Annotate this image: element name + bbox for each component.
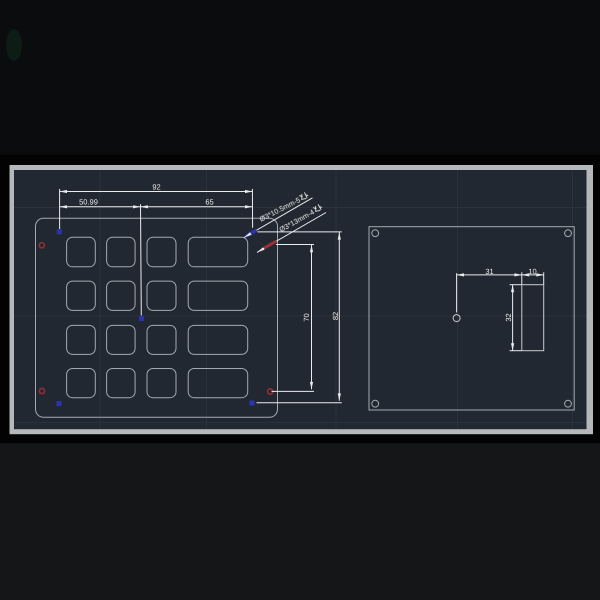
svg-text:31: 31 (485, 267, 493, 276)
svg-text:70: 70 (302, 313, 311, 321)
svg-text:50.99: 50.99 (79, 198, 98, 207)
svg-text:82: 82 (331, 312, 340, 320)
svg-text:92: 92 (152, 182, 160, 191)
svg-text:10: 10 (528, 267, 536, 276)
svg-text:32: 32 (504, 313, 513, 321)
svg-text:65: 65 (205, 198, 213, 207)
